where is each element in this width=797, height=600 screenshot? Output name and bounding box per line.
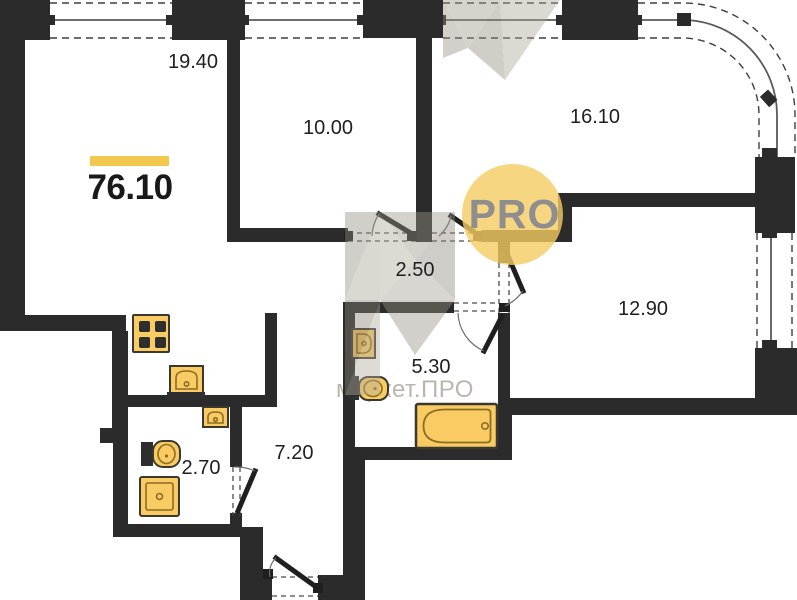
total-area-value: 76.10 bbox=[82, 168, 178, 208]
bathtub bbox=[416, 404, 497, 448]
room-area-label-bathroom: 5.30 bbox=[398, 356, 464, 379]
door-to-bathroom bbox=[458, 313, 502, 351]
shower-tray bbox=[140, 477, 179, 516]
floor-plan-drawing bbox=[0, 0, 797, 600]
fixtures bbox=[133, 315, 497, 516]
wc-sink bbox=[203, 407, 228, 427]
stove bbox=[133, 315, 169, 352]
room-area-label-hallway: 7.20 bbox=[261, 442, 327, 465]
pro-logo-badge: PRO bbox=[462, 164, 563, 265]
room-area-label-wc: 2.70 bbox=[168, 457, 234, 480]
room-area-label-room-bottom: 12.90 bbox=[610, 298, 676, 321]
door-to-wc bbox=[235, 467, 255, 511]
room-area-label-room-right: 16.10 bbox=[562, 106, 628, 129]
kitchen-sink bbox=[167, 366, 205, 399]
pro-logo-text: PRO bbox=[469, 191, 561, 238]
floor-plan: маркет.ПРО bbox=[0, 0, 797, 600]
room-area-label-living: 19.40 bbox=[160, 51, 226, 74]
room-area-label-hall-inner: 2.50 bbox=[382, 259, 448, 282]
balcony-window-curve bbox=[638, 3, 795, 157]
room-area-label-room-top: 10.00 bbox=[295, 117, 361, 140]
total-area-underline bbox=[90, 156, 169, 166]
